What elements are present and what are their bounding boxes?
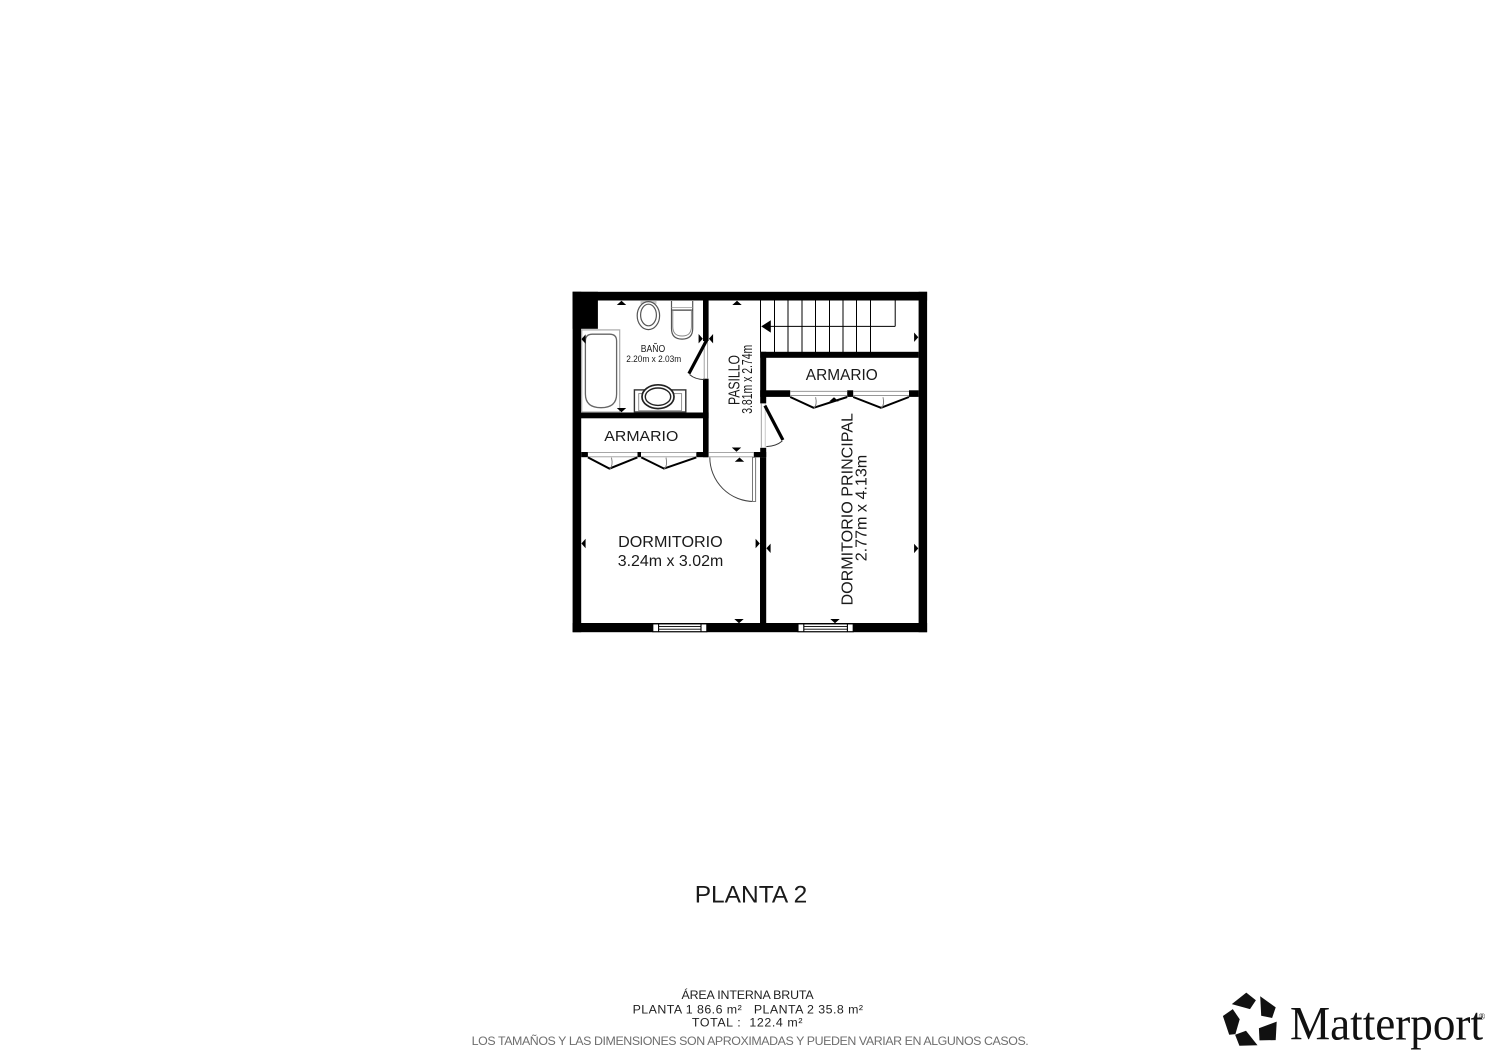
svg-text:LOS TAMAÑOS Y LAS DIMENSIONES: LOS TAMAÑOS Y LAS DIMENSIONES SON APROXI… (472, 1034, 1029, 1048)
svg-text:®: ® (1479, 1012, 1486, 1022)
svg-text:2.20m x 2.03m: 2.20m x 2.03m (626, 354, 681, 365)
svg-text:3.81m x 2.74m: 3.81m x 2.74m (740, 345, 756, 414)
svg-text:ARMARIO: ARMARIO (604, 428, 678, 445)
svg-text:DORMITORIO: DORMITORIO (618, 534, 723, 551)
svg-text:Matterport: Matterport (1290, 998, 1484, 1051)
svg-text:TOTAL : 122.4 m²: TOTAL : 122.4 m² (692, 1016, 803, 1030)
svg-text:ARMARIO: ARMARIO (806, 367, 878, 384)
svg-text:3.24m x 3.02m: 3.24m x 3.02m (618, 553, 724, 570)
svg-text:PLANTA 2: PLANTA 2 (695, 882, 808, 909)
svg-text:2.77m x 4.13m: 2.77m x 4.13m (854, 455, 871, 562)
svg-text:ÁREA INTERNA BRUTA: ÁREA INTERNA BRUTA (681, 987, 814, 1002)
svg-text:PLANTA 1 86.6 m² PLANTA 2 35: PLANTA 1 86.6 m² PLANTA 2 35.8 m² (633, 1002, 864, 1016)
